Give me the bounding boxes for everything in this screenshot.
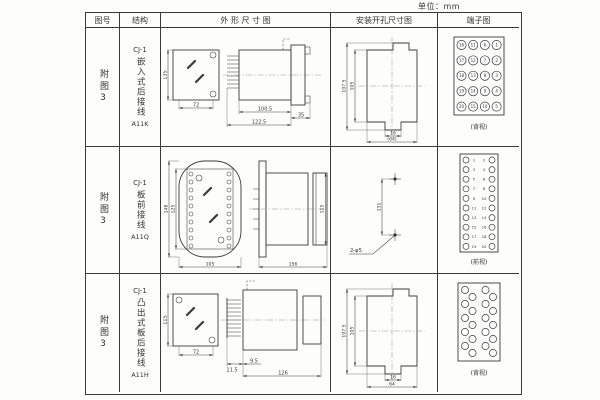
dim-body-length: 100.5 [257,107,271,113]
series-label: CJ-1 [133,46,147,54]
dim-front-height: 148 [163,204,169,213]
svg-text:7: 7 [473,186,476,191]
install-cell-row1: 107.5 105 16 (64) [331,28,438,147]
dim-outer-height: 107.5 [341,324,347,337]
dim-front-width: 72 [192,349,198,355]
outline-cell-row3: 115 72 11.5 9.5 [161,274,331,392]
terminal-drawing-a11k: 1611611712721813831914942015105 (背视) [439,30,518,144]
dim-overall-width: (64) [387,136,397,142]
svg-text:19: 19 [459,89,465,94]
terminal-drawing-a11h: (背视) [439,276,518,391]
dim-inner-height: 105 [349,326,355,335]
dim-overall-length: 122.5 [251,120,265,126]
svg-text:12: 12 [471,58,477,63]
terminal-view-label: (背视) [471,123,488,131]
fig-no-cell-row1: 附图3 [86,28,120,147]
series-label: CJ-1 [133,179,147,187]
terminal-view-label: (背视) [471,369,488,377]
fig-no-cell-row2: 附图3 [86,147,120,274]
manual-page: 单位：mm 图号 结构 外 形 尺 寸 图 安装开孔尺寸图 端子图 附图3 CJ… [0,0,600,400]
dimension-table: 图号 结构 外 形 尺 寸 图 安装开孔尺寸图 端子图 附图3 CJ-1 嵌入式… [85,12,522,395]
svg-text:1: 1 [473,157,476,162]
svg-text:2: 2 [483,157,486,162]
dim-flange-depth: 35 [297,113,303,119]
svg-text:18: 18 [482,234,487,239]
svg-text:13: 13 [472,215,477,220]
dim-body-length: 126 [278,370,288,376]
terminal-drawing-a11q: 1357911131517192468101214161820 (前视) [439,149,518,272]
front-view: 115 72 [163,294,218,356]
dim-hole-spacing: 131 [376,202,382,211]
svg-text:14: 14 [471,89,477,94]
svg-text:10: 10 [482,104,488,109]
svg-text:10: 10 [482,195,487,200]
col-header-terminal: 端子图 [438,13,519,28]
svg-text:6: 6 [483,176,486,181]
svg-text:14: 14 [482,215,487,220]
structure-label: 凸出式板后接线 [136,298,145,368]
terminal-cell-row3: (背视) [438,274,519,392]
dim-notch-width: 16 [390,374,396,380]
svg-text:18: 18 [459,73,465,78]
terminal-grid [461,286,496,356]
outline-drawing-a11q: 148 125 105 156 [163,149,329,272]
svg-text:15: 15 [471,104,477,109]
svg-text:16: 16 [482,224,487,229]
outline-drawing-a11k: 135 72 100.5 [163,30,329,144]
svg-text:19: 19 [472,243,477,248]
dim-front-width: 72 [192,103,198,109]
dim-pin-length: 11.5 [226,367,237,373]
svg-text:11: 11 [472,205,477,210]
fig-no-label: 附图3 [98,69,107,106]
svg-text:6: 6 [484,42,487,47]
fig-no-label: 附图3 [98,192,107,229]
front-view: 148 125 105 [163,161,240,268]
model-label: A11Q [131,233,149,241]
svg-text:17: 17 [459,58,465,63]
series-label: CJ-1 [133,287,147,295]
install-drawing-a11k: 107.5 105 16 (64) [333,30,436,144]
svg-text:8: 8 [484,73,487,78]
dim-front-width: 105 [205,261,214,267]
col-header-install: 安装开孔尺寸图 [331,13,438,28]
svg-text:15: 15 [472,224,477,229]
structure-label: 板前接线 [136,190,145,230]
hole-marks [389,173,401,241]
col-header-structure: 结构 [120,13,161,28]
fig-no-label: 附图3 [98,315,107,352]
unit-label: 单位：mm [418,1,460,12]
dim-front-height: 115 [163,315,169,325]
install-cell-row2: 131 2-φ5 [331,147,438,274]
structure-cell-row1: CJ-1 嵌入式后接线 A11K [120,28,161,147]
svg-text:13: 13 [471,73,477,78]
dim-notch-width: 16 [390,130,396,136]
svg-text:9: 9 [473,195,476,200]
terminal-grid: 1611611712721813831914942015105 [457,40,501,111]
svg-text:7: 7 [484,58,487,63]
svg-text:8: 8 [483,186,486,191]
dim-front-inner-height: 125 [170,204,176,213]
model-label: A11K [132,120,149,128]
dim-overall-width: 64 [389,381,395,387]
dim-side-height: 115 [319,204,325,213]
dim-inner-height: 105 [349,82,355,91]
outline-cell-row1: 135 72 100.5 [161,28,331,147]
svg-text:17: 17 [472,234,477,239]
svg-text:3: 3 [473,167,476,172]
hole-callout: 2-φ5 [350,248,362,254]
outline-cell-row2: 148 125 105 156 [161,147,331,274]
svg-text:20: 20 [459,104,465,109]
terminal-cell-row2: 1357911131517192468101214161820 (前视) [438,147,519,274]
svg-text:12: 12 [482,205,487,210]
install-drawing-a11q: 131 2-φ5 [333,149,436,272]
install-drawing-a11h: 107.5 105 16 64 [333,276,436,391]
dim-pin-offset: 9.5 [250,358,258,364]
fig-no-cell-row3: 附图3 [86,274,120,392]
structure-cell-row2: CJ-1 板前接线 A11Q [120,147,161,274]
svg-text:9: 9 [484,89,487,94]
install-cell-row3: 107.5 105 16 64 [331,274,438,392]
terminal-grid: 1357911131517192468101214161820 [463,157,495,249]
terminal-view-label: (前视) [471,258,488,266]
dim-front-height: 135 [163,70,169,80]
svg-text:4: 4 [483,167,486,172]
svg-text:16: 16 [459,42,465,47]
col-header-outline: 外 形 尺 寸 图 [161,13,331,28]
svg-text:11: 11 [471,42,477,47]
outline-drawing-a11h: 115 72 11.5 9.5 [163,276,329,391]
col-header-fig-no: 图号 [86,13,120,28]
svg-text:20: 20 [482,243,487,248]
side-view: 156 115 [249,161,328,268]
dim-side-length: 156 [288,261,297,267]
structure-label: 嵌入式后接线 [136,57,145,117]
model-label: A11H [131,371,149,379]
side-view: 100.5 35 122.5 [223,39,323,127]
dim-outer-height: 107.5 [341,79,347,92]
terminal-cell-row1: 1611611712721813831914942015105 (背视) [438,28,519,147]
front-view: 135 72 [163,50,219,109]
side-view: 11.5 9.5 126 [221,281,325,377]
structure-cell-row3: CJ-1 凸出式板后接线 A11H [120,274,161,392]
svg-text:5: 5 [473,176,476,181]
